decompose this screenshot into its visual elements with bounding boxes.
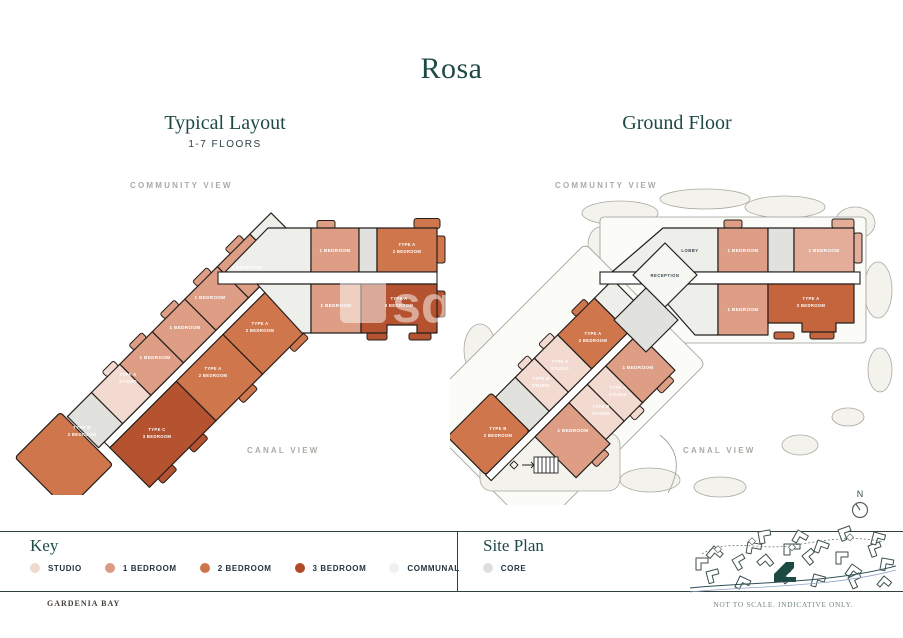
north-label: N <box>857 489 864 499</box>
legend-item-communal: COMMUNAL <box>389 563 459 573</box>
legend-item-core: CORE <box>483 563 527 573</box>
svg-text:STUDIO: STUDIO <box>609 392 627 397</box>
svg-text:2 BEDROOM: 2 BEDROOM <box>199 373 228 378</box>
svg-text:1 BEDROOM: 1 BEDROOM <box>623 365 654 370</box>
svg-text:TYPE A: TYPE A <box>398 242 415 247</box>
svg-text:2 BEDROOM: 2 BEDROOM <box>484 433 513 438</box>
svg-text:STUDIO: STUDIO <box>551 366 569 371</box>
footer-brand: GARDENIA BAY <box>47 599 120 608</box>
divider-vertical <box>457 532 458 591</box>
site-plan-title: Site Plan <box>483 536 544 556</box>
site-buildings <box>696 526 894 592</box>
svg-text:TYPE B: TYPE B <box>532 376 549 381</box>
svg-text:STUDIO: STUDIO <box>592 411 610 416</box>
highlighted-building-rosa <box>774 562 796 582</box>
svg-text:TYPE A: TYPE A <box>584 331 601 336</box>
svg-text:1 BEDROOM: 1 BEDROOM <box>320 248 351 253</box>
site-plan-map <box>688 524 898 596</box>
svg-text:TYPE B: TYPE B <box>592 404 609 409</box>
unit-core <box>359 228 377 272</box>
compass-needle <box>856 504 860 510</box>
svg-text:TYPE A: TYPE A <box>204 366 221 371</box>
svg-text:TYPE A: TYPE A <box>551 359 568 364</box>
key-title: Key <box>30 536 58 556</box>
svg-text:STUDIO: STUDIO <box>532 383 550 388</box>
svg-text:3 BEDROOM: 3 BEDROOM <box>797 303 826 308</box>
svg-text:2 BEDROOM: 2 BEDROOM <box>579 338 608 343</box>
svg-text:TYPE A: TYPE A <box>119 372 136 377</box>
legend-item-studio: STUDIO <box>30 563 82 573</box>
legend-item-3-bedroom: 3 BEDROOM <box>295 563 367 573</box>
typical-layout-subtitle: 1-7 FLOORS <box>110 139 340 150</box>
svg-text:TYPE B: TYPE B <box>73 425 90 430</box>
svg-text:TYPE B: TYPE B <box>489 426 506 431</box>
typical-layout-title: Typical Layout <box>110 112 340 135</box>
studio-swatch <box>30 563 40 573</box>
svg-text:3 BEDROOM: 3 BEDROOM <box>143 434 172 439</box>
one-bedroom-swatch <box>105 563 115 573</box>
core-swatch <box>483 563 493 573</box>
page-title: Rosa <box>0 52 903 86</box>
svg-text:TYPE C: TYPE C <box>148 427 165 432</box>
compass: N <box>848 486 872 524</box>
legend: STUDIO 1 BEDROOM 2 BEDROOM 3 BEDROOM COM… <box>30 563 526 573</box>
legend-item-2-bedroom: 2 BEDROOM <box>200 563 272 573</box>
three-bedroom-swatch <box>295 563 305 573</box>
svg-text:TYPE A: TYPE A <box>609 385 626 390</box>
ground-floorplan: LOBBY RECEPTION 1 BEDROOM 1 BEDROOM 1 BE… <box>450 185 895 505</box>
community-view-label-left: COMMUNITY VIEW <box>130 181 233 190</box>
svg-text:LOBBY: LOBBY <box>681 248 698 253</box>
footer-disclaimer: NOT TO SCALE. INDICATIVE ONLY. <box>713 600 853 609</box>
svg-text:STUDIO: STUDIO <box>119 379 137 384</box>
svg-text:1 BEDROOM: 1 BEDROOM <box>170 325 201 330</box>
brochure-page: Rosa Typical Layout 1-7 FLOORS Ground Fl… <box>0 0 903 638</box>
typical-floorplan: 1 BEDROOM TYPE A 2 BEDROOM 1 BEDROOM TYP… <box>15 195 455 495</box>
svg-text:1 BEDROOM: 1 BEDROOM <box>809 248 840 253</box>
svg-text:TYPE A: TYPE A <box>251 321 268 326</box>
legend-item-1-bedroom: 1 BEDROOM <box>105 563 177 573</box>
unit-core <box>768 228 794 272</box>
svg-text:1 BEDROOM: 1 BEDROOM <box>558 428 589 433</box>
svg-text:2 BEDROOM: 2 BEDROOM <box>393 249 422 254</box>
ground-floor-title: Ground Floor <box>562 112 792 135</box>
svg-text:2 BEDROOM: 2 BEDROOM <box>246 328 275 333</box>
svg-text:1 BEDROOM: 1 BEDROOM <box>232 265 263 270</box>
communal-swatch <box>389 563 399 573</box>
svg-text:1 BEDROOM: 1 BEDROOM <box>195 295 226 300</box>
two-bedroom-swatch <box>200 563 210 573</box>
svg-text:ya: ya <box>387 325 446 383</box>
svg-text:RECEPTION: RECEPTION <box>651 273 680 278</box>
svg-text:1 BEDROOM: 1 BEDROOM <box>140 355 171 360</box>
svg-text:1 BEDROOM: 1 BEDROOM <box>728 248 759 253</box>
svg-text:1 BEDROOM: 1 BEDROOM <box>728 307 759 312</box>
svg-text:TYPE A: TYPE A <box>802 296 819 301</box>
svg-text:2 BEDROOM: 2 BEDROOM <box>68 432 97 437</box>
